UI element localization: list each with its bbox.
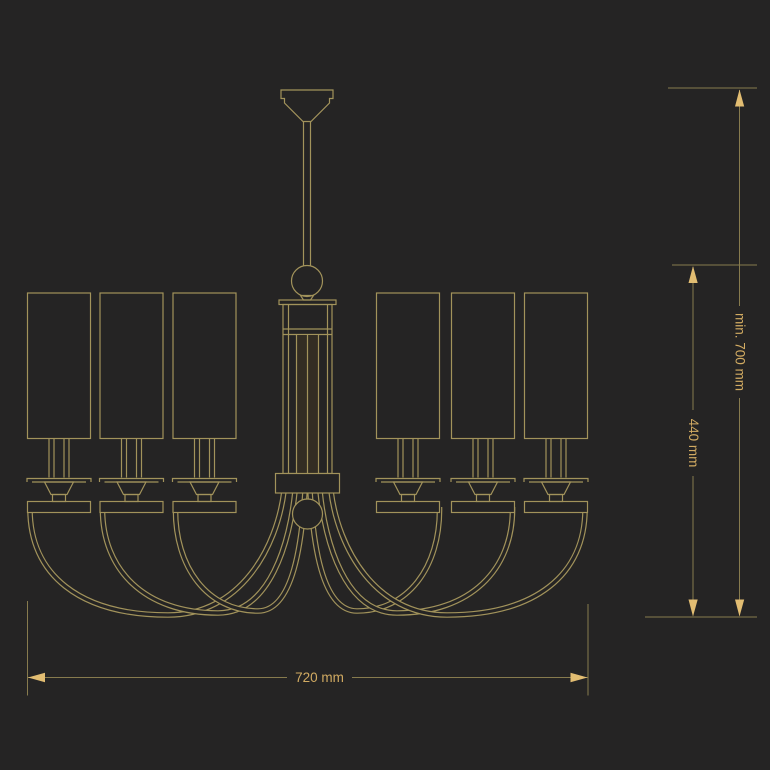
- hub-collar: [276, 474, 340, 494]
- lamp-shade-unit: [27, 293, 91, 502]
- arrow-down-icon: [689, 600, 698, 617]
- arm-bar: [28, 502, 91, 513]
- upper-ball-finial: [292, 266, 323, 297]
- arm-bar: [173, 502, 236, 513]
- width-dimension: 720 mm: [28, 601, 589, 696]
- ceiling-canopy: [281, 90, 333, 122]
- width-dimension-label: 720 mm: [295, 670, 344, 685]
- arrow-down-icon: [735, 600, 744, 617]
- lower-ball-finial: [293, 499, 323, 529]
- lamp-shade-unit: [100, 293, 164, 502]
- arrow-right-icon: [571, 673, 588, 682]
- arrow-left-icon: [28, 673, 45, 682]
- technical-drawing-page: 720 mm min. 700 mm 440 mm: [0, 0, 770, 770]
- lamp-shade-unit: [524, 293, 588, 502]
- chandelier-dimensional-drawing: 720 mm min. 700 mm 440 mm: [0, 0, 770, 770]
- central-column: [279, 300, 336, 474]
- arm-bar: [525, 502, 588, 513]
- arm-bar: [452, 502, 515, 513]
- suspension-rod: [304, 122, 311, 267]
- lamp-shade-unit: [451, 293, 515, 502]
- arm-bar: [377, 502, 440, 513]
- overall-height-dimension-label: min. 700 mm: [733, 313, 748, 391]
- arrow-up-icon: [735, 90, 744, 107]
- lamp-shade-unit: [376, 293, 440, 502]
- arrow-up-icon: [689, 266, 698, 283]
- lamp-shade-unit: [173, 293, 237, 502]
- arm-bar: [100, 502, 163, 513]
- body-height-dimension-label: 440 mm: [686, 419, 701, 468]
- overall-height-dimension: min. 700 mm: [645, 88, 757, 617]
